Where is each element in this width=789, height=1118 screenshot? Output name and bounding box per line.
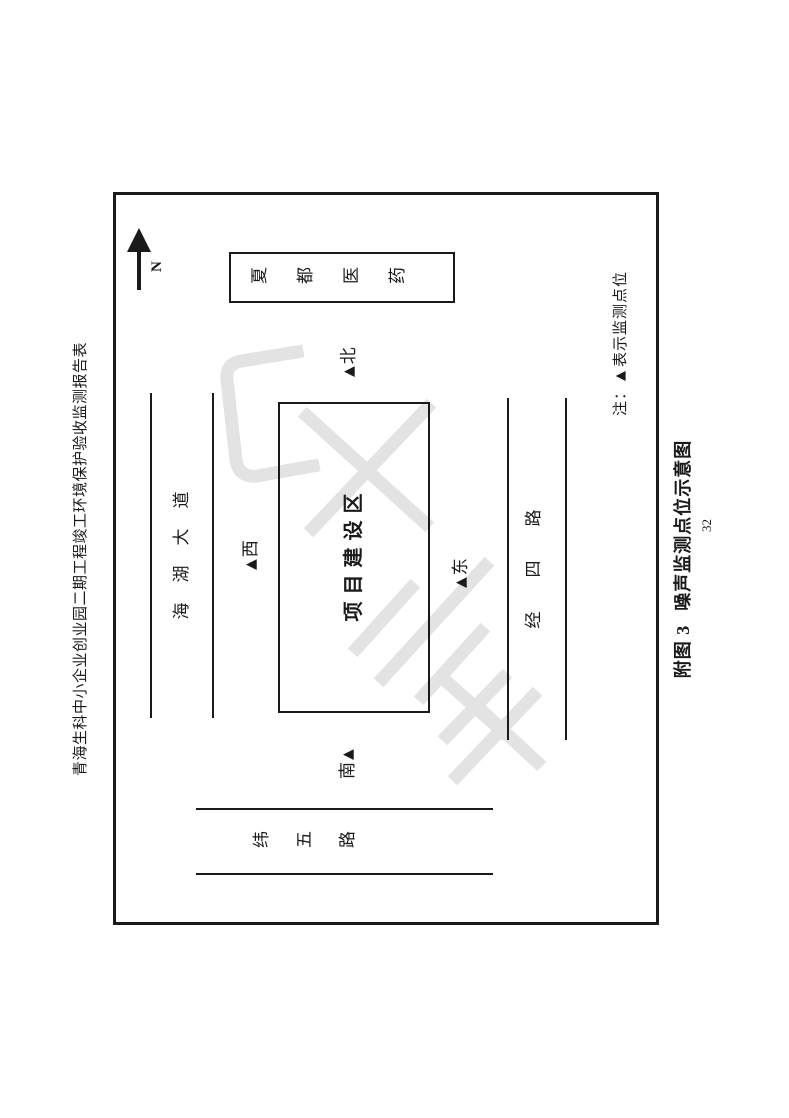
road-east-edge-line <box>507 398 509 740</box>
monitoring-point-label: 西 <box>241 540 260 557</box>
road-south-edge-line <box>196 873 493 875</box>
road-north-label: 海湖大道 <box>173 393 190 718</box>
project-area-label: 项目建设区 <box>344 487 364 629</box>
monitoring-point-marker-icon: ▲ <box>341 366 357 377</box>
document-page: 青海生科中小企业创业园二期工程竣工环境保护验收监测报告表 <box>0 0 789 1118</box>
legend-note-text: 表示监测点位 <box>613 271 629 367</box>
monitoring-point-east: ▲东 <box>452 558 469 590</box>
monitoring-point-marker-icon: ▲ <box>453 577 469 588</box>
monitoring-point-label: 东 <box>451 558 470 575</box>
road-east-label: 经四路 <box>525 398 542 740</box>
legend-note-prefix: 注： <box>613 384 629 416</box>
road-north-edge-line <box>212 393 214 718</box>
page-number: 32 <box>700 519 713 532</box>
road-south-edge-line <box>196 808 493 810</box>
building-label: 夏都医药 <box>250 269 434 286</box>
project-area-box: 项目建设区 <box>278 402 430 713</box>
report-header-title: 青海生科中小企业创业园二期工程竣工环境保护验收监测报告表 <box>74 0 89 1118</box>
legend-marker-icon: ▲ <box>613 370 628 381</box>
road-east-edge-line <box>565 398 567 740</box>
north-arrow-icon <box>127 228 151 252</box>
road-south-label-wrap: 纬五路 <box>196 811 493 872</box>
legend-note: 注：▲表示监测点位 <box>614 271 629 416</box>
figure-caption: 附图 3噪声监测点位示意图 <box>674 0 692 1118</box>
monitoring-point-west: ▲西 <box>242 540 259 572</box>
monitoring-point-marker-icon: ▲ <box>243 559 259 570</box>
road-south-label: 纬五路 <box>252 833 381 850</box>
north-arrow-label: N <box>150 261 165 272</box>
north-arrow-shaft <box>137 248 141 290</box>
rotated-figure-canvas: 青海生科中小企业创业园二期工程竣工环境保护验收监测报告表 <box>0 0 789 1118</box>
figure-caption-number: 附图 3 <box>673 625 693 679</box>
road-north-edge-line <box>150 393 152 718</box>
monitoring-point-marker-icon: ▲ <box>340 749 356 760</box>
monitoring-point-north: ▲北 <box>340 347 357 379</box>
figure-caption-title: 噪声监测点位示意图 <box>673 440 693 611</box>
building-box: 夏都医药 <box>229 252 455 303</box>
monitoring-point-south: 南▲ <box>339 747 356 779</box>
monitoring-point-label: 南 <box>338 762 357 779</box>
monitoring-point-label: 北 <box>339 347 358 364</box>
